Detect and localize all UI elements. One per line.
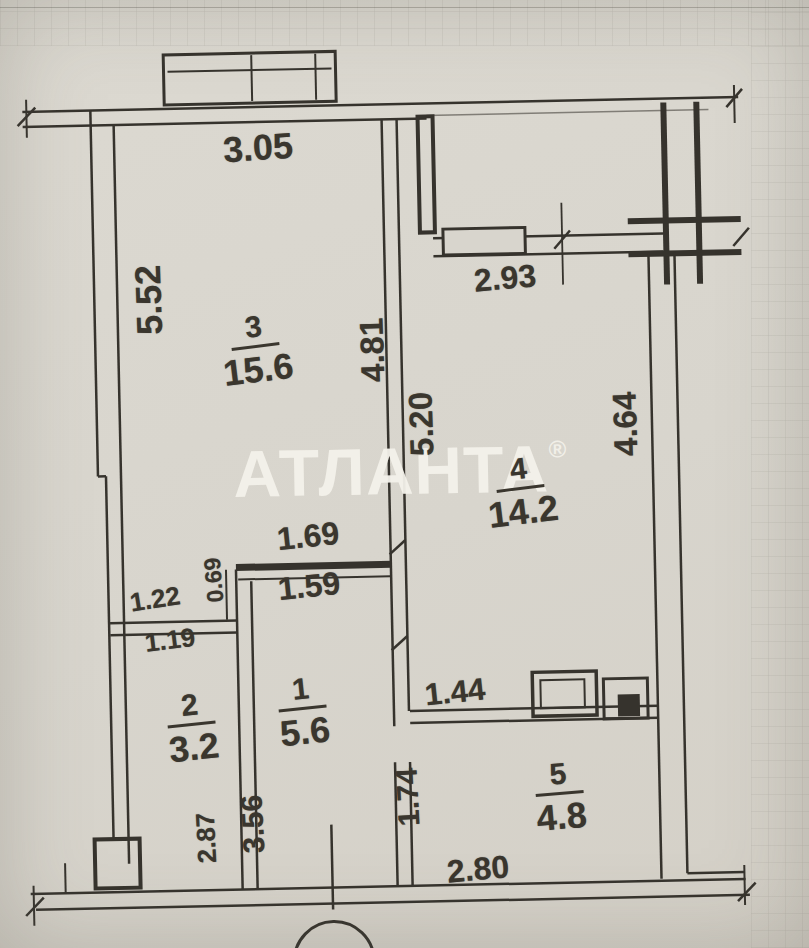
dim-room4-left-height: 5.20	[403, 391, 438, 456]
dim-room5-left-height: 1.74	[391, 767, 424, 827]
room-3-label: 3 15.6	[217, 308, 296, 392]
dim-room5-bottom-width: 2.80	[446, 850, 511, 887]
dim-left-small-vertical: 0.69	[201, 557, 228, 604]
room-2-area: 3.2	[167, 723, 221, 768]
room-3-number: 3	[227, 309, 280, 351]
room-5-label: 5 4.8	[532, 757, 588, 837]
room-1-number: 1	[275, 672, 327, 713]
dim-loggia-width: 2.93	[473, 259, 538, 296]
room-4-area: 14.2	[486, 486, 560, 534]
dim-top-width: 3.05	[222, 128, 294, 169]
dim-room5-top-width: 1.44	[423, 673, 486, 710]
room-1-label: 1 5.6	[274, 672, 332, 753]
dim-hall-top-outer: 1.69	[275, 517, 340, 555]
room-2-label: 2 3.2	[163, 688, 221, 769]
room-5-number: 5	[532, 757, 584, 797]
room-4-number: 4	[492, 451, 545, 493]
plan-labels: 3.05 5.52 2.93 4.81 5.20 4.64 1.69 1.59 …	[0, 0, 809, 948]
dim-room4-right-height: 4.64	[607, 391, 642, 456]
dim-room3-right-height: 4.81	[354, 317, 389, 382]
dim-room2-lower-height: 2.87	[192, 812, 221, 864]
room-1-area: 5.6	[278, 707, 332, 752]
room-2-number: 2	[164, 688, 216, 729]
dim-hall-lower-height: 3.56	[236, 794, 269, 854]
dim-left-height: 5.52	[130, 264, 168, 335]
room-3-area: 15.6	[221, 344, 295, 392]
dim-left-small-upper: 1.22	[128, 582, 182, 616]
room-5-area: 4.8	[535, 793, 588, 837]
room-4-label: 4 14.2	[482, 450, 561, 534]
dim-left-small-lower: 1.19	[143, 624, 196, 656]
dim-hall-top-inner: 1.59	[276, 567, 341, 605]
floorplan-photo: АТЛАНТА® 3.05 5.52 2.93 4.81 5.20 4.64 1…	[0, 0, 809, 948]
